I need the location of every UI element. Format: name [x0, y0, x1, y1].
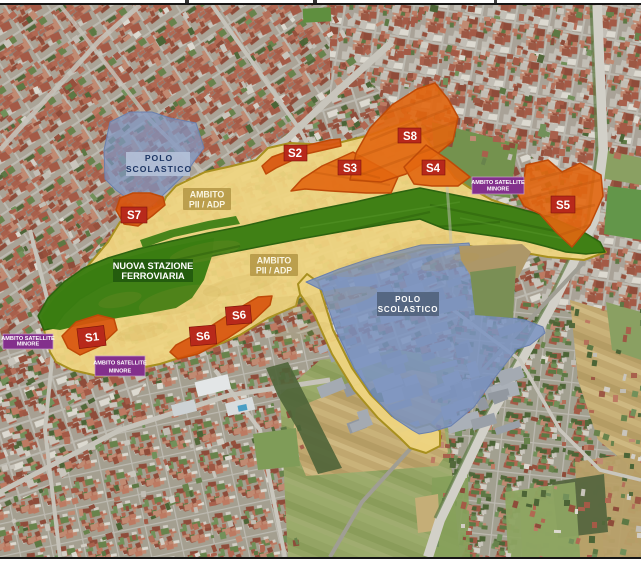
svg-text:S5: S5	[556, 200, 571, 212]
svg-text:MINORE: MINORE	[17, 342, 40, 348]
svg-text:AMBITO SATELLITE: AMBITO SATELLITE	[93, 361, 147, 367]
svg-text:NUOVA STAZIONE: NUOVA STAZIONE	[113, 261, 193, 271]
svg-text:POLO: POLO	[145, 153, 173, 163]
svg-text:S3: S3	[343, 163, 357, 175]
svg-text:S6: S6	[232, 309, 247, 322]
svg-text:PII / ADP: PII / ADP	[256, 266, 292, 276]
svg-text:FERROVIARIA: FERROVIARIA	[121, 271, 185, 281]
svg-text:SCOLASTICO: SCOLASTICO	[126, 164, 192, 174]
svg-text:SCOLASTICO: SCOLASTICO	[378, 305, 438, 314]
svg-text:MINORE: MINORE	[109, 369, 132, 375]
svg-text:S1: S1	[84, 331, 100, 345]
svg-text:S4: S4	[426, 163, 441, 175]
svg-text:POLO: POLO	[395, 295, 421, 304]
svg-text:PII / ADP: PII / ADP	[189, 200, 225, 210]
svg-text:S7: S7	[127, 210, 141, 222]
svg-text:S6: S6	[196, 330, 211, 343]
svg-text:AMBITO: AMBITO	[190, 190, 225, 200]
svg-text:AMBITO SATELLITE: AMBITO SATELLITE	[471, 180, 525, 186]
svg-text:AMBITO: AMBITO	[257, 256, 292, 266]
svg-text:S2: S2	[288, 148, 302, 160]
svg-text:MINORE: MINORE	[487, 187, 510, 193]
svg-text:S8: S8	[403, 131, 418, 143]
